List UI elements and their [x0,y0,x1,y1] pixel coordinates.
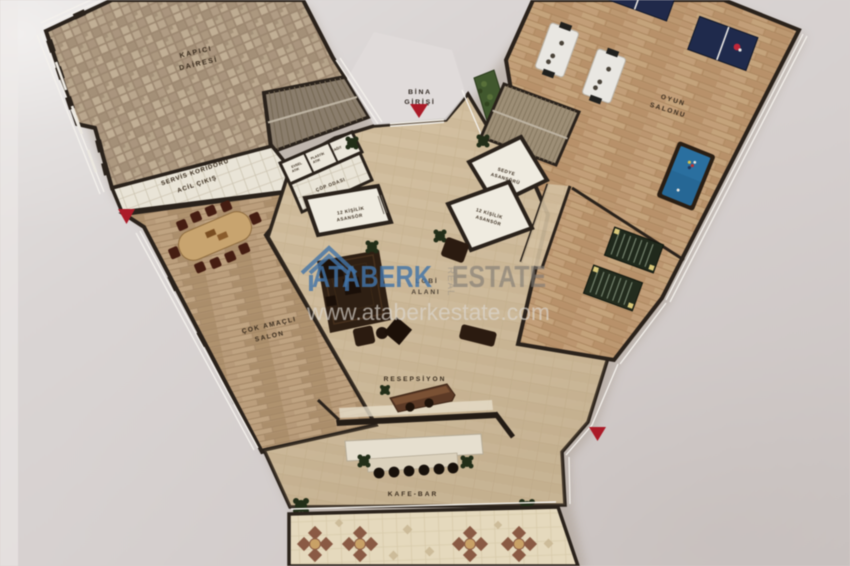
svg-text:KAFE-BAR: KAFE-BAR [388,491,438,498]
svg-text:www.ataberkestate.com: www.ataberkestate.com [306,299,550,325]
svg-text:BİNA: BİNA [408,88,432,96]
svg-text:ATABERK: ATABERK [312,259,432,294]
svg-text:RESEPSİYON: RESEPSİYON [384,375,447,383]
svg-text:ESTATE: ESTATE [452,259,546,294]
